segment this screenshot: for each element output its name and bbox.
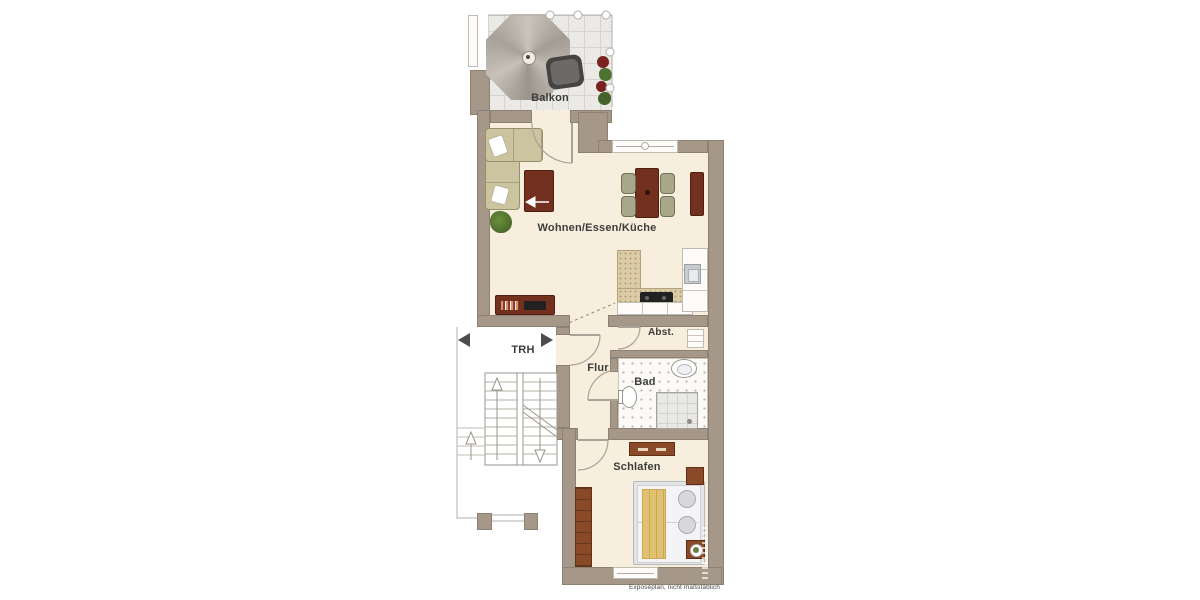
room-label-flur: Flur [587, 362, 609, 374]
linework-overlay [0, 0, 1200, 600]
room-label-bad: Bad [634, 376, 655, 388]
room-label-trh: TRH [511, 344, 534, 356]
disclaimer-text: Exposéplan, nicht maßstäblich [560, 584, 720, 591]
room-label-abst: Abst. [648, 327, 674, 338]
window-handle [642, 143, 649, 150]
room-label-wohnen: Wohnen/Essen/Küche [538, 222, 657, 234]
floorplan-canvas: Balkon Wohnen/Essen/Küche TRH Flur Abst.… [0, 0, 1200, 600]
room-label-balkon: Balkon [531, 92, 569, 104]
north-arrow-icon [526, 197, 549, 207]
vertical-watermark [702, 527, 708, 579]
trh-direction-arrows [458, 333, 553, 347]
open-passage-dashed-line [564, 303, 615, 325]
stairs [457, 373, 557, 465]
room-label-schlafen: Schlafen [613, 461, 660, 473]
